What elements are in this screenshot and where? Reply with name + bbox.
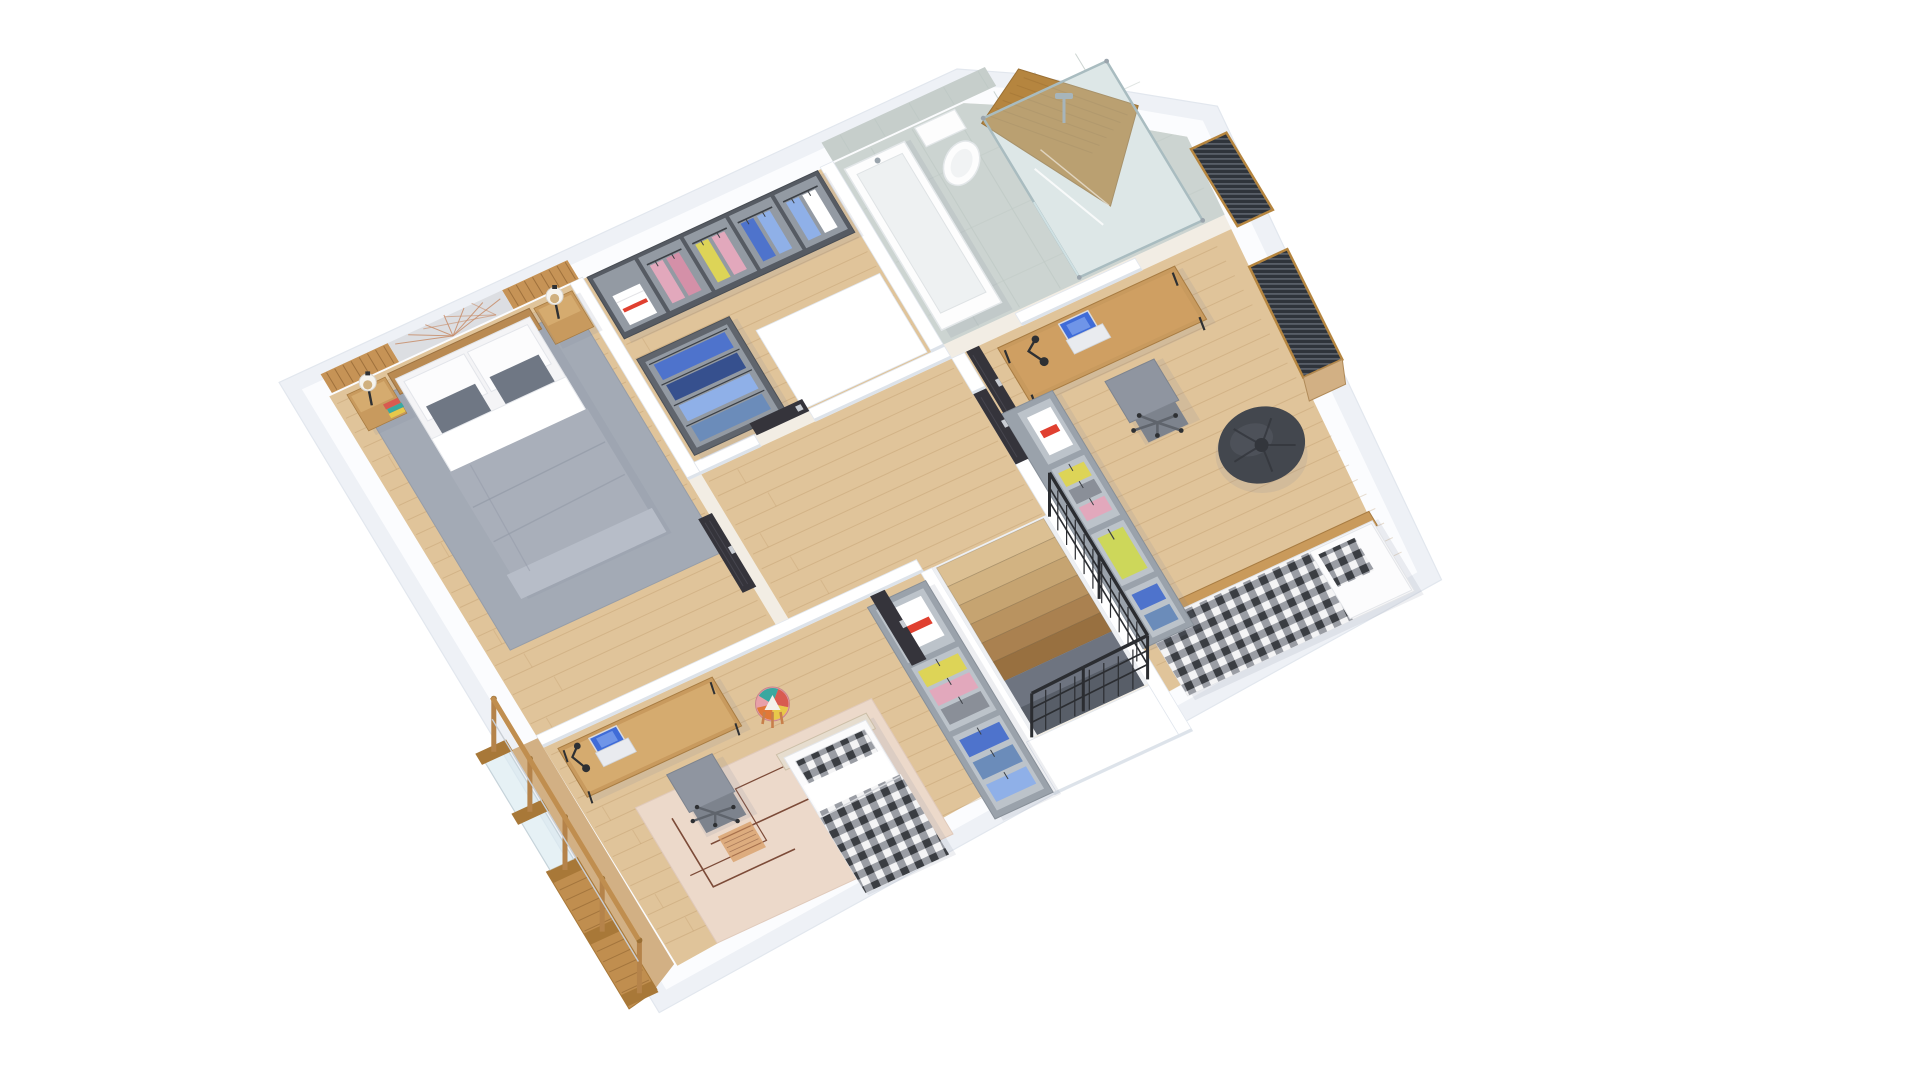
floor-plan-svg: [0, 0, 1920, 1080]
floor-plan-rendering: [0, 0, 1920, 1080]
